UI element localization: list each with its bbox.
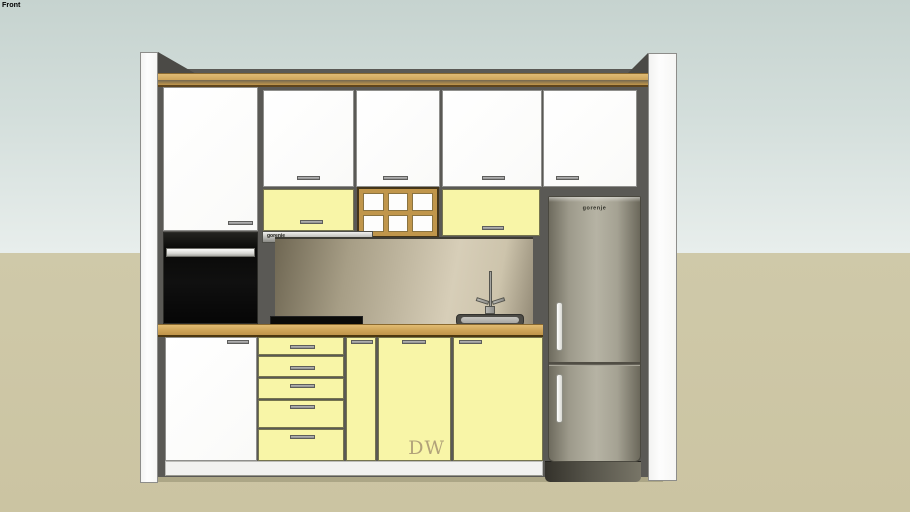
tall-upper-cabinet-handle: [228, 221, 253, 225]
base-cabinet-white-door: [165, 337, 257, 461]
left-side-pillar: [140, 52, 158, 483]
top-wood-trim: [158, 73, 648, 87]
oven-handle: [166, 248, 255, 257]
yellow-flap-handle-left: [300, 220, 323, 224]
drawer-1-handle: [290, 345, 315, 349]
freezer-door-handle: [556, 374, 563, 423]
shelf-cubby: [388, 215, 409, 233]
3d-viewport[interactable]: Front gorenje: [0, 0, 910, 512]
yellow-flap-door-left: [263, 189, 354, 231]
drawer-5: [258, 429, 344, 461]
drawer-5-handle: [290, 435, 315, 439]
shelf-cubby: [363, 193, 384, 211]
oven: [163, 232, 258, 324]
shelf-cubby: [388, 193, 409, 211]
drawer-3-handle: [290, 384, 315, 388]
base-narrow-door-handle: [351, 340, 373, 344]
fridge-plinth: [545, 461, 641, 482]
fridge: gorenje: [548, 196, 641, 462]
countertop: [158, 324, 543, 337]
upper-cabinet-door-4: [543, 90, 637, 187]
sink-bowl: [461, 317, 519, 323]
toe-kick: [165, 461, 543, 476]
faucet-base: [485, 306, 495, 314]
yellow-flap-handle-right: [482, 226, 504, 230]
upper-cabinet-handle-3: [482, 176, 505, 180]
base-white-door-handle: [227, 340, 249, 344]
fridge-top-highlight: [549, 197, 640, 202]
fridge-brand-logo: gorenje: [569, 205, 619, 211]
tall-upper-cabinet-door: [163, 87, 258, 231]
drawer-3: [258, 378, 344, 399]
base-wide-yellow-door: [453, 337, 543, 461]
upper-cabinet-door-3: [442, 90, 542, 187]
drawer-2-handle: [290, 366, 315, 370]
dishwasher-handle: [402, 340, 426, 344]
upper-cabinet-handle-2: [383, 176, 408, 180]
dishwasher-label: DW: [408, 437, 445, 459]
drawer-4-handle: [290, 405, 315, 409]
base-wide-door-handle: [459, 340, 482, 344]
dishwasher-door: DW: [378, 337, 451, 461]
fridge-door-handle: [556, 302, 563, 351]
fridge-freezer-divider: [549, 362, 640, 366]
shelf-cubby: [412, 193, 433, 211]
shelf-cubby: [412, 215, 433, 233]
shelf-cubby: [363, 215, 384, 233]
scene-tab-label: Front: [2, 1, 20, 9]
upper-cabinet-handle-4: [556, 176, 579, 180]
right-side-pillar: [648, 53, 677, 481]
upper-cabinet-door-2: [356, 90, 440, 187]
upper-cabinet-handle-1: [297, 176, 320, 180]
upper-cabinet-door-1: [263, 90, 354, 187]
base-narrow-yellow-door: [346, 337, 376, 461]
